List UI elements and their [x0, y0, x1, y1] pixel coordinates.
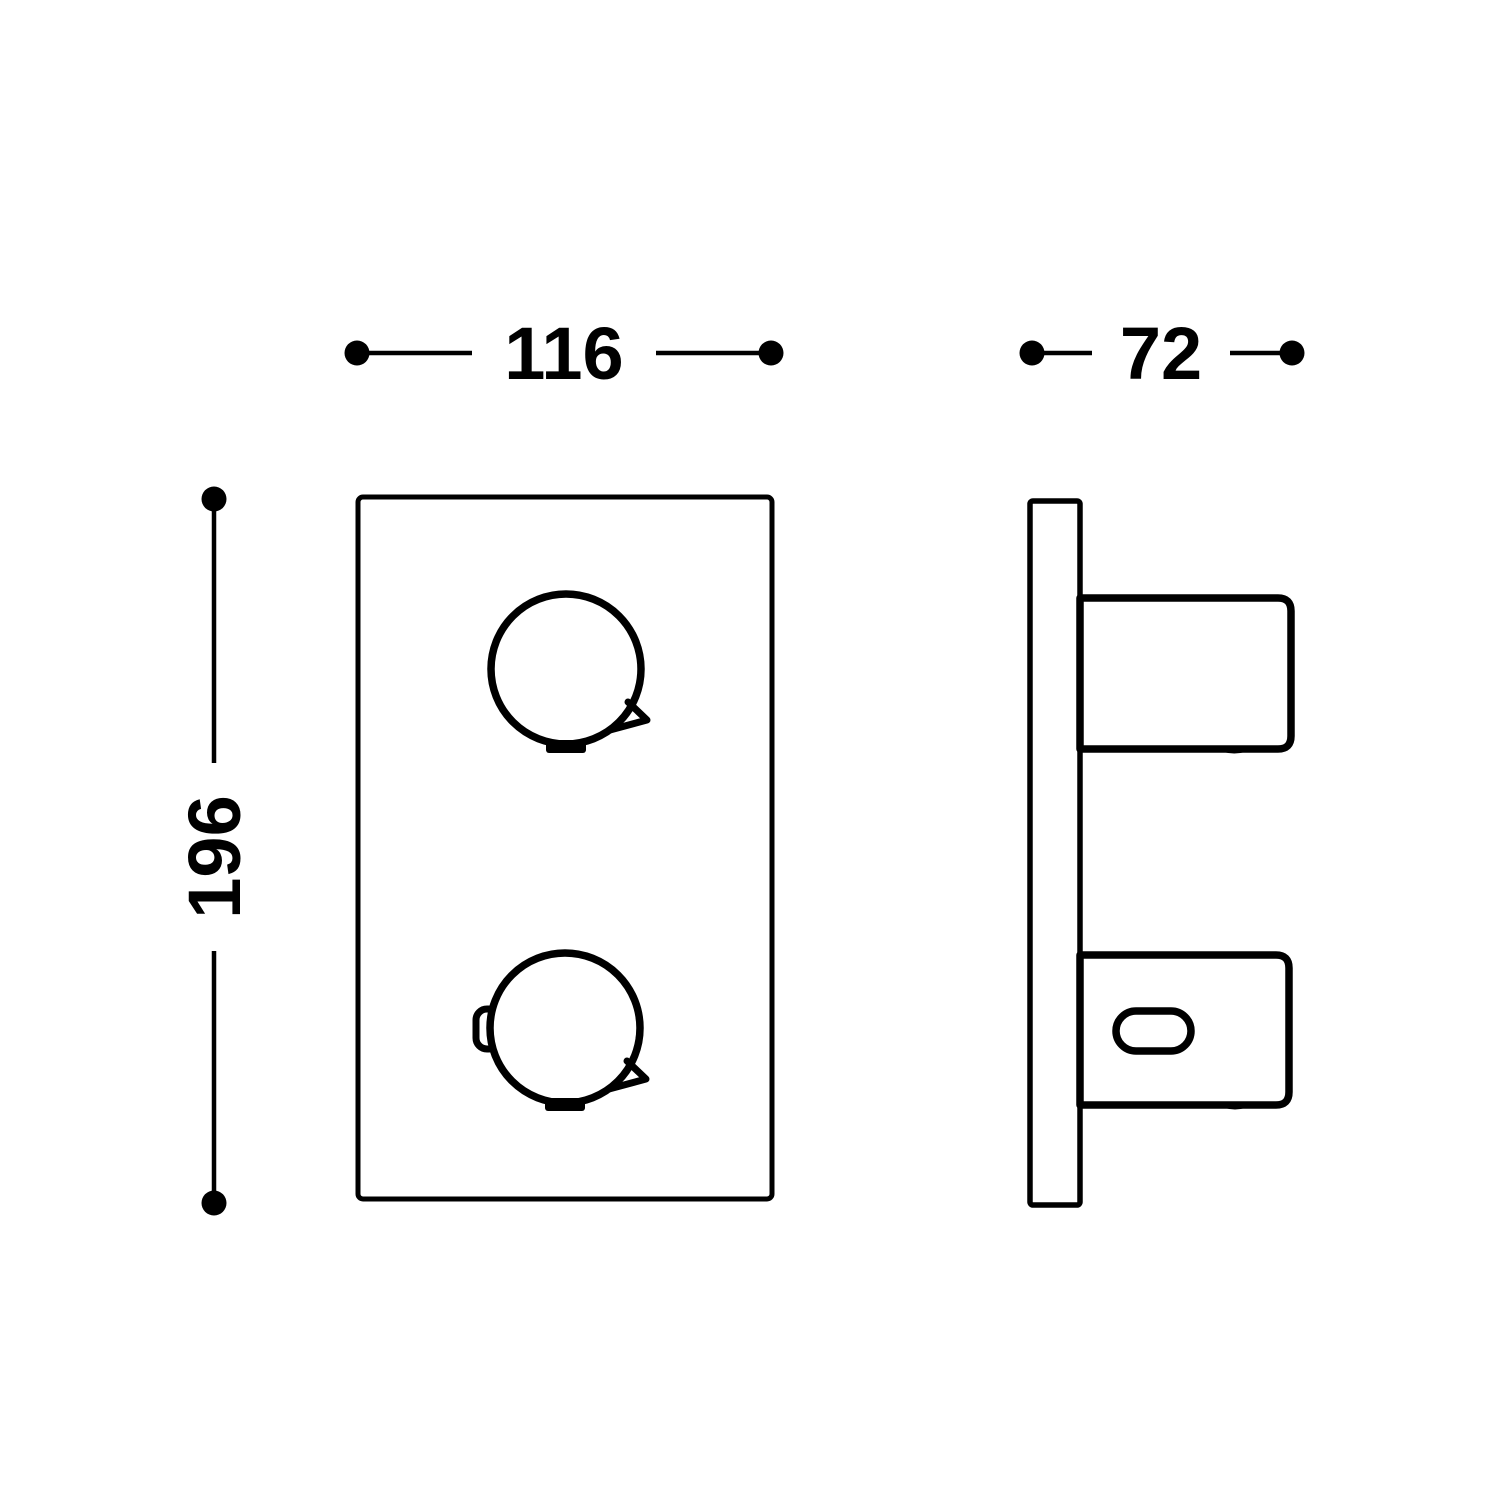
dimension-width-label: 116	[504, 312, 623, 395]
dimension-endpoint-dot	[1020, 341, 1045, 366]
knob-ring	[491, 594, 641, 744]
side-view	[1030, 501, 1291, 1205]
temperature-knob-side	[1080, 598, 1291, 749]
front-view	[358, 497, 772, 1199]
dimension-height-label: 196	[173, 795, 256, 918]
knob-ring	[490, 953, 640, 1103]
dimension-width: 116	[345, 312, 784, 395]
drawing-svg: 116 72 196	[0, 0, 1500, 1500]
knob-bottom-tab	[545, 1098, 585, 1111]
dimension-depth: 72	[1020, 312, 1305, 395]
dimension-endpoint-dot	[202, 1191, 227, 1216]
wall-plate-side	[1030, 501, 1080, 1205]
technical-drawing: 116 72 196	[0, 0, 1500, 1500]
slot-indicator	[1116, 1011, 1191, 1051]
dimension-height: 196	[173, 487, 256, 1216]
dimension-endpoint-dot	[1280, 341, 1305, 366]
knob-bottom-tab	[546, 740, 586, 753]
dimension-depth-label: 72	[1120, 312, 1202, 395]
dimension-endpoint-dot	[759, 341, 784, 366]
